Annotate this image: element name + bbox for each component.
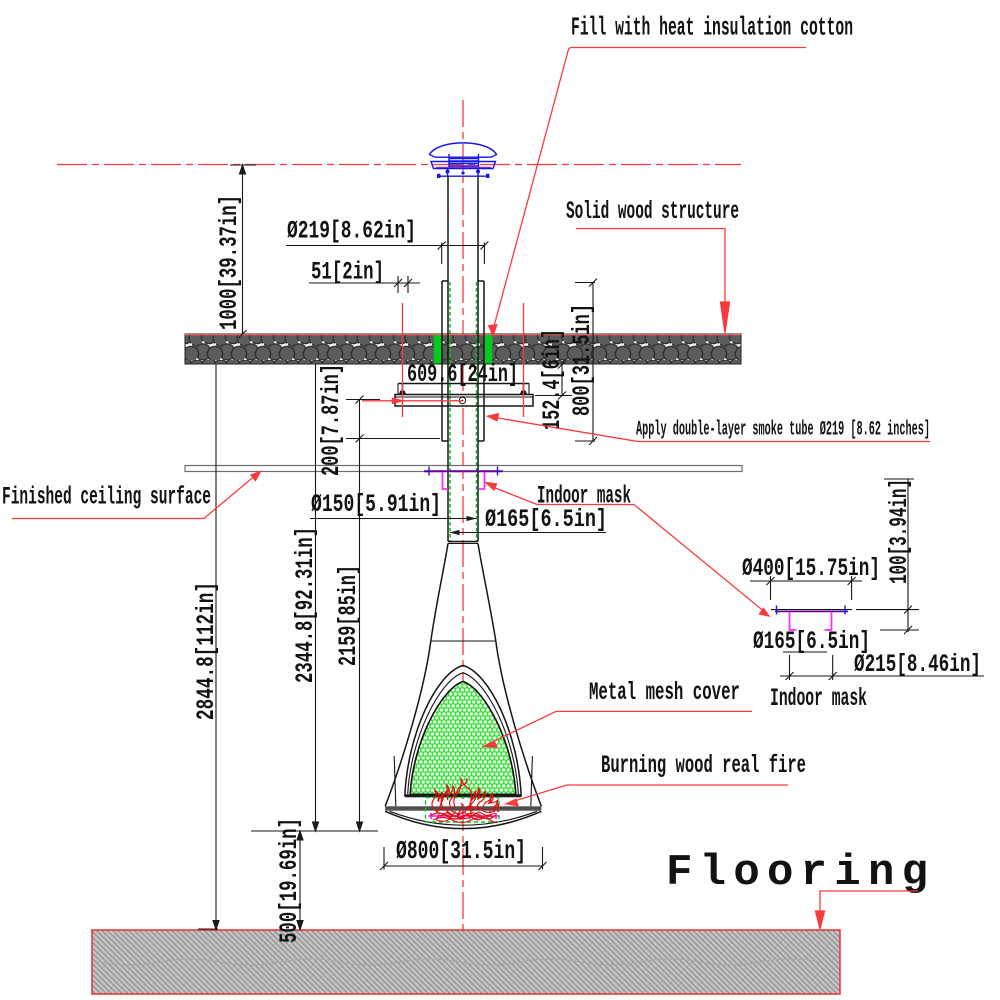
svg-text:Indoor mask: Indoor mask: [770, 684, 867, 713]
svg-text:Apply double-layer smoke tube: Apply double-layer smoke tube Ø219 [8.62…: [636, 419, 930, 442]
svg-text:500[19.69in]: 500[19.69in]: [275, 818, 304, 943]
svg-text:Burning wood real fire: Burning wood real fire: [601, 751, 806, 780]
svg-text:2159[85in]: 2159[85in]: [334, 565, 363, 666]
svg-text:800[31.5in]: 800[31.5in]: [568, 304, 597, 416]
svg-text:2844.8[112in]: 2844.8[112in]: [192, 582, 221, 720]
svg-text:Ø400[15.75in]: Ø400[15.75in]: [742, 554, 880, 583]
svg-text:Solid wood structure: Solid wood structure: [566, 197, 739, 226]
svg-text:100[3.94in]: 100[3.94in]: [885, 479, 914, 584]
svg-text:Fill with heat insulation cott: Fill with heat insulation cotton: [571, 13, 853, 43]
svg-text:Ø800[31.5in]: Ø800[31.5in]: [396, 836, 526, 866]
svg-text:152.4[6in]: 152.4[6in]: [538, 329, 567, 430]
svg-text:Metal mesh cover: Metal mesh cover: [589, 678, 740, 707]
svg-text:609.6[24in]: 609.6[24in]: [407, 360, 518, 389]
svg-text:Ø150[5.91in]: Ø150[5.91in]: [311, 490, 441, 519]
svg-text:Ø215[8.46in]: Ø215[8.46in]: [854, 650, 981, 679]
svg-text:Indoor mask: Indoor mask: [537, 482, 631, 511]
svg-text:Finished ceiling surface: Finished ceiling surface: [2, 483, 211, 512]
svg-text:200[7.87in]: 200[7.87in]: [317, 364, 346, 476]
svg-text:Ø165[6.5in]: Ø165[6.5in]: [753, 627, 870, 656]
svg-text:2344.8[92.31in]: 2344.8[92.31in]: [291, 527, 320, 683]
svg-text:Ø219[8.62in]: Ø219[8.62in]: [287, 217, 416, 246]
svg-text:51[2in]: 51[2in]: [311, 257, 384, 286]
svg-text:1000[39.37in]: 1000[39.37in]: [215, 195, 244, 330]
